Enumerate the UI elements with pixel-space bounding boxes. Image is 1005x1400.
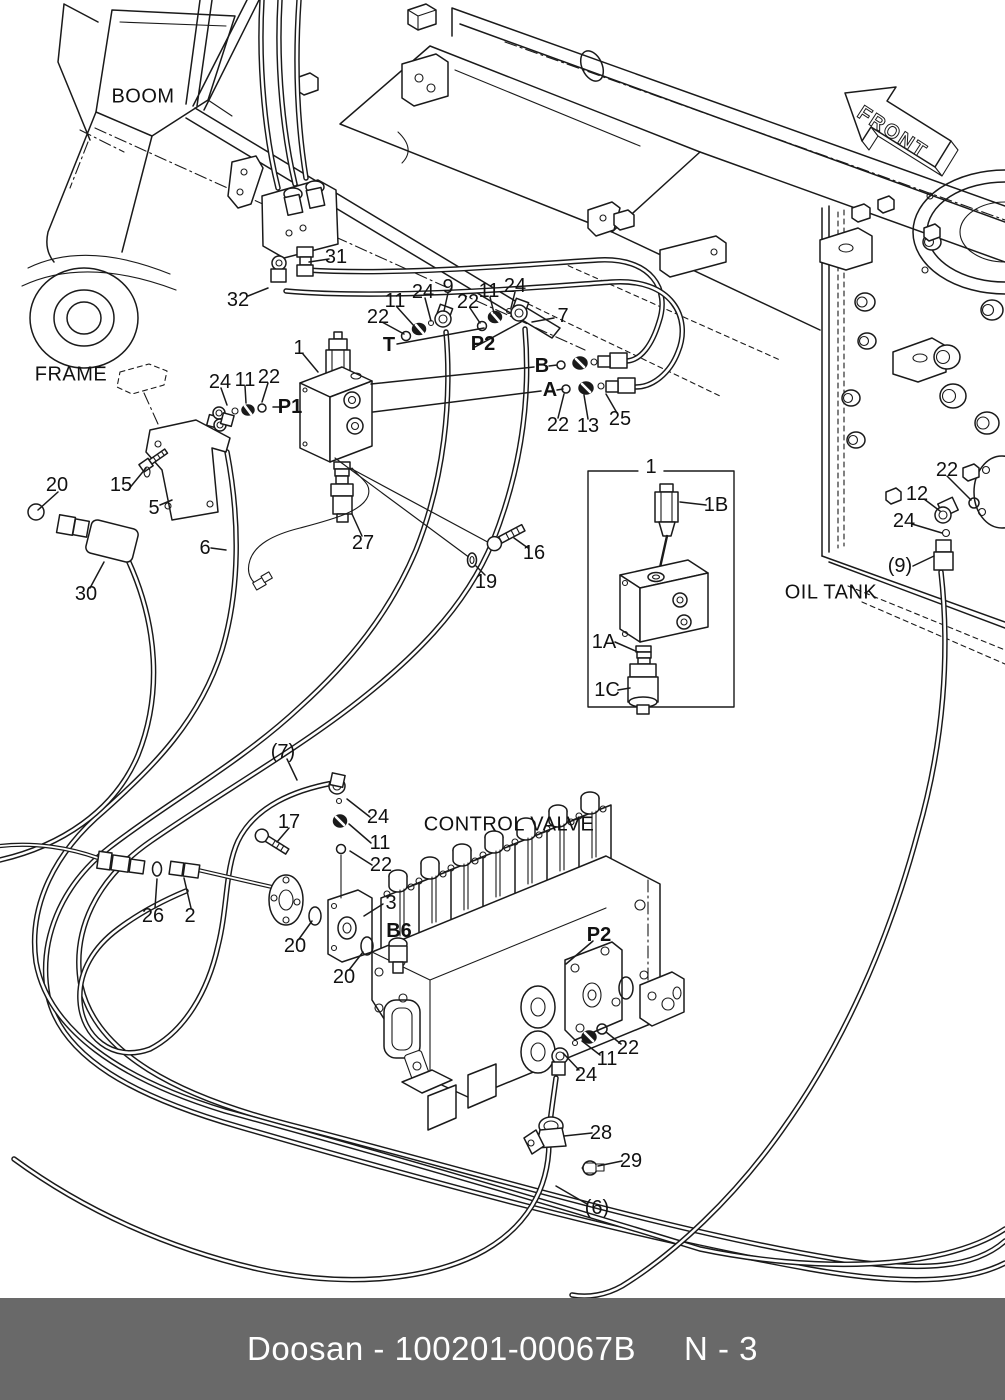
callout-15: 15 [110,475,132,495]
callout-32: 32 [227,290,249,310]
callout-27: 27 [352,533,374,553]
diagram-line-art: FRONT [0,0,1005,1400]
callout-22-bot: 22 [617,1038,639,1058]
callout-16: 16 [523,543,545,563]
fitting-rows-top [402,298,636,394]
port-label-a: A [543,380,557,400]
callout-24-cv: 24 [367,807,389,827]
callout-1a: 1A [592,632,616,652]
callout-11-t: 11 [385,291,406,311]
callout-22-p2: 22 [457,292,479,312]
callout-19: 19 [475,572,497,592]
callout-17: 17 [278,812,300,832]
callout-12: 12 [906,484,928,504]
footer-page-ref: N - 3 [684,1330,758,1368]
callout-13: 13 [577,416,599,436]
callout-1b: 1B [704,495,728,515]
flange-block-assembly [269,773,373,962]
hoses [0,0,1005,1296]
front-arrow: FRONT [845,87,958,176]
tank-fitting-stack [934,497,979,570]
callout-5: 5 [148,498,159,518]
callout-1: 1 [293,338,304,358]
port-label-b: B [535,356,549,376]
callout-30: 30 [75,584,97,604]
callout-22-cv: 22 [370,855,392,875]
callout-6: 6 [199,538,210,558]
callout-11-p1: 11 [235,370,256,390]
footer-separator: - [364,1330,395,1368]
port-label-t: T [383,335,395,355]
callout-20-a: 20 [46,475,68,495]
callout-26: 26 [142,906,164,926]
callout-29: 29 [620,1151,642,1171]
callout-6-hose: (6) [585,1198,609,1218]
footer-brand: Doosan [247,1330,364,1368]
callout-22-tank: 22 [936,460,958,480]
callout-9: 9 [442,277,453,297]
boom-label: BOOM [111,86,174,109]
callout-28: 28 [590,1123,612,1143]
parts-diagram-page: FRONT [0,0,1005,1400]
callout-2: 2 [184,906,195,926]
control-valve [372,792,684,1175]
control-valve-label: CONTROL VALVE [424,814,595,837]
callout-24-p1: 24 [209,372,231,392]
footer-bar: Doosan - 100201-00067BN - 3 [0,1298,1005,1400]
callout-11-cv: 11 [370,833,391,853]
port-label-p2-top: P2 [471,334,495,354]
port-label-b6: B6 [386,921,412,941]
callout-11-bot: 11 [597,1049,618,1069]
inset-title-1: 1 [638,457,663,477]
callout-20-c: 20 [333,967,355,987]
callout-25: 25 [609,409,631,429]
oil-tank-label: OIL TANK [785,582,878,605]
frame-label: FRAME [35,364,108,387]
callout-7: 7 [557,306,568,326]
footer-part-number: 100201-00067B [395,1330,636,1368]
callout-9-hose: (9) [888,556,912,576]
solenoid-valve-block [207,332,372,590]
callout-22-ba: 22 [547,415,569,435]
callout-24-bot: 24 [575,1065,597,1085]
callout-24-t: 24 [412,282,434,302]
callout-24-p2: 24 [504,276,526,296]
port-label-p1: P1 [278,397,302,417]
callout-7-hose: (7) [271,742,295,762]
callout-3: 3 [385,893,396,913]
port-label-p2-valve: P2 [587,925,611,945]
callout-1c: 1C [594,680,620,700]
callout-22-p1: 22 [258,367,280,387]
callout-11-p2: 11 [479,281,500,301]
callout-20-b: 20 [284,936,306,956]
callout-31: 31 [325,247,347,267]
callout-24-tank: 24 [893,511,915,531]
